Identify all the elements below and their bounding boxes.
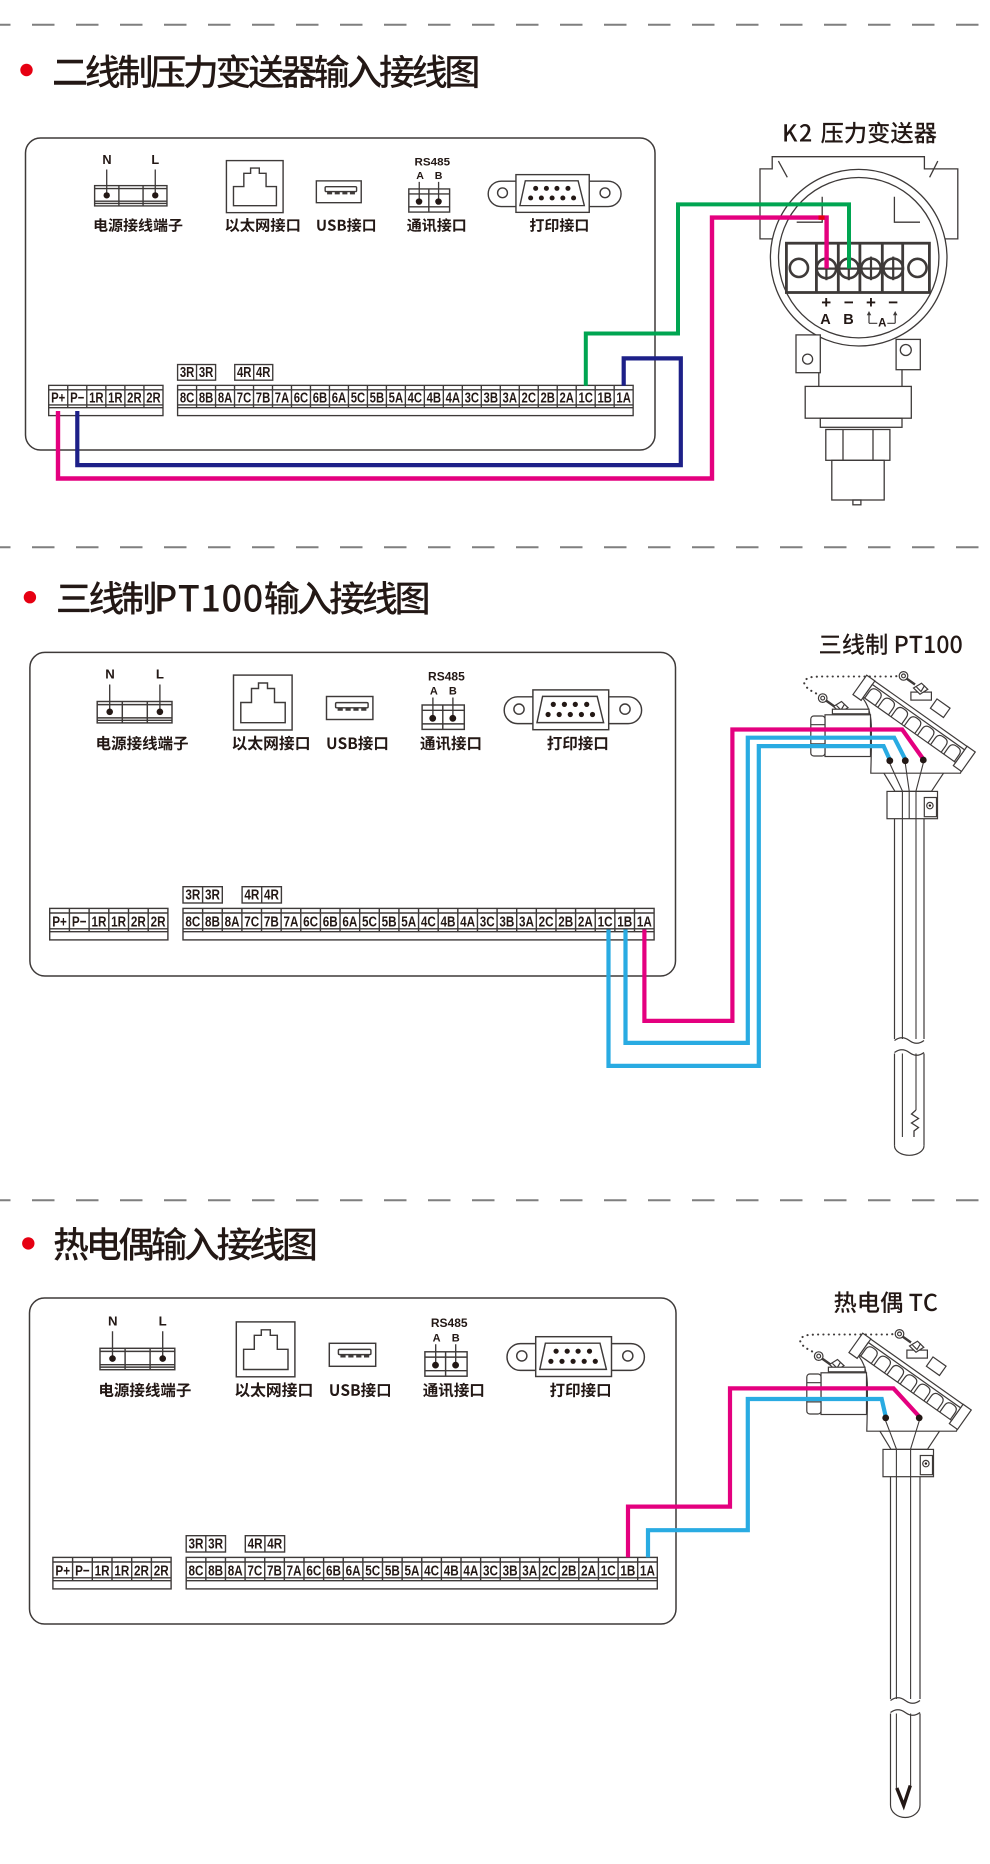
svg-text:A: A [820, 312, 831, 328]
svg-text:−: − [888, 293, 898, 312]
svg-text:+: + [821, 293, 831, 312]
svg-text:−: − [844, 293, 854, 312]
svg-text:B: B [843, 312, 853, 328]
svg-text:+: + [866, 293, 876, 312]
svg-text:A: A [878, 318, 886, 330]
